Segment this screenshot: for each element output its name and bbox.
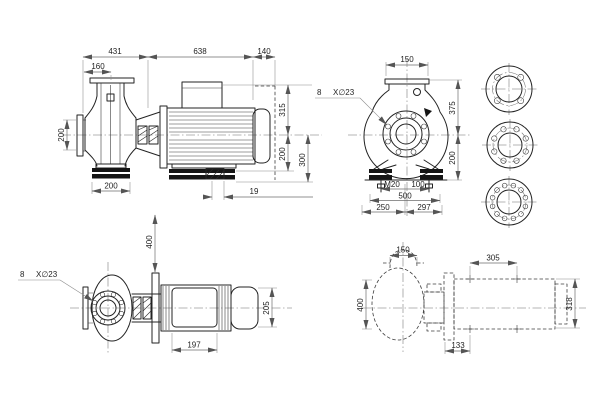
dim-flange-to-bolt: 133	[451, 341, 465, 350]
bolt-callout-plan: 8 X∅23	[18, 270, 93, 301]
dim-center-to-top: 315	[278, 103, 287, 117]
dim-base-right: 297	[417, 203, 431, 212]
flange-4-hole	[481, 63, 537, 115]
pump-dimensional-drawing: 431 638 140 160 200 315 200 300 20	[0, 0, 600, 400]
plan-coupling	[132, 273, 161, 343]
volute-outline	[364, 79, 448, 192]
side-bottom-dimensions: 200 19	[92, 181, 313, 200]
dim-discharge-port: 150	[400, 55, 414, 64]
dim-center-to-base: 200	[278, 147, 287, 161]
dim-flange-height: 375	[448, 101, 457, 115]
bolt-count: 8	[317, 88, 322, 97]
coupling-lantern	[136, 106, 167, 168]
dashed-outline	[372, 250, 567, 340]
flange-12-hole	[481, 176, 537, 228]
front-bottom-dimensions: M20 100 500 250 297	[362, 180, 442, 215]
dim-motor-footprint: 318	[565, 297, 574, 311]
dim-anchor-spacing: 100	[411, 180, 425, 189]
dim-anchor-thread: M20	[384, 180, 400, 189]
dim-motor-length: 638	[193, 47, 207, 56]
plan-view: 8 X∅23 400 205 197	[18, 215, 292, 354]
motor-fins	[169, 112, 253, 160]
leader-line	[360, 98, 387, 125]
dim-pump-footprint: 400	[356, 298, 365, 312]
dim-suction-port: 150	[396, 246, 410, 255]
bolt-count: 8	[20, 270, 25, 279]
dim-overall-width: 400	[145, 235, 154, 249]
dim-bolt-edge: 19	[250, 187, 259, 196]
dim-base-height: 200	[448, 151, 457, 165]
front-elevation-view: 150 8 X∅23 375 200 M20 100 500 250 297	[315, 55, 470, 216]
pump-casing-outline	[77, 78, 136, 179]
front-right-dimensions: 375 200	[429, 80, 462, 180]
bolt-callout-front: 8 X∅23	[315, 88, 387, 125]
dim-foot-width: 200	[104, 182, 118, 191]
mounting-hole-marks	[466, 275, 521, 333]
dim-flange-offset: 160	[91, 62, 105, 71]
side-elevation-view: 431 638 140 160 200 315 200 300 20	[57, 47, 322, 200]
dim-foot-span: 197	[187, 341, 201, 350]
dismantling-space-outline	[255, 86, 275, 180]
dim-dismantling: 140	[257, 47, 271, 56]
dim-base-left: 250	[376, 203, 390, 212]
flange-8-hole	[482, 119, 538, 171]
dim-center-to-floor: 300	[298, 153, 307, 167]
fan-cover	[253, 109, 270, 163]
dim-motor-width: 205	[262, 301, 271, 315]
flange-face-views	[481, 63, 538, 228]
vent-plug	[414, 89, 421, 96]
suction-flange-bolt-holes	[386, 114, 427, 155]
side-top-dimensions: 431 638 140 160	[83, 47, 275, 113]
footprint-outline-view: 150 305 400 318 133	[356, 242, 586, 354]
dim-pump-length: 431	[108, 47, 122, 56]
dim-bolt-spacing: 305	[486, 254, 500, 263]
rotation-arrow	[424, 108, 432, 117]
motor-outline	[167, 82, 275, 180]
dim-discharge-flange: 200	[57, 128, 66, 142]
bolt-spec: X∅23	[333, 88, 355, 97]
support-legs	[374, 160, 438, 169]
plan-dimensions: 400 205 197	[145, 215, 277, 353]
technical-drawing-canvas: 431 638 140 160 200 315 200 300 20	[0, 0, 600, 400]
dim-base-width: 500	[398, 192, 412, 201]
bolt-spec: X∅23	[36, 270, 58, 279]
terminal-box	[182, 82, 222, 108]
